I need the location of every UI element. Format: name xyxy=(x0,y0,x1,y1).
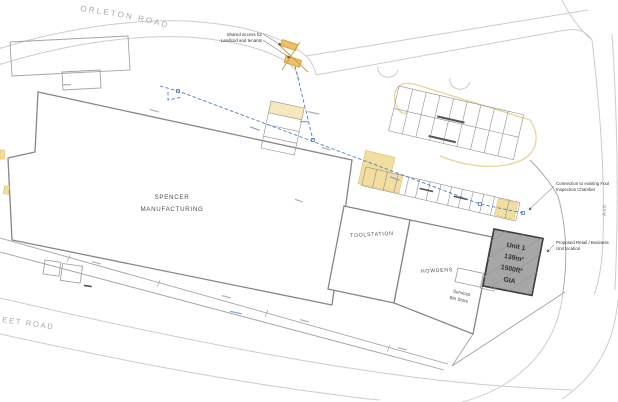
bottom-road-lines xyxy=(0,290,618,402)
a49-label: A49 xyxy=(602,205,608,216)
shared-access-text-line1: Shared access for xyxy=(227,32,263,37)
substation-outline xyxy=(42,260,94,287)
site-plan-drawing: SPENCER MANUFACTURING TOOLSTATION HOWDEN… xyxy=(0,0,618,402)
proposed-unit-text-line2: Unit location xyxy=(556,246,581,251)
howdens-building: HOWDENS xyxy=(394,220,492,334)
sheet-road-label: EET ROAD xyxy=(2,315,55,331)
foul-connection-text-line2: Inspection Chamber xyxy=(556,187,596,192)
neighbour-building xyxy=(10,36,130,90)
service-bay-strip xyxy=(358,151,524,222)
annotation-foul-connection: Connection to existing Foul Inspection C… xyxy=(529,181,609,210)
spencer-label-line2: MANUFACTURING xyxy=(140,206,203,213)
unit1-building: Unit 1 139m² 1500ft² GIA xyxy=(483,229,543,295)
shared-access-text-line2: Landlord and tenants xyxy=(221,38,263,43)
annotation-proposed-unit: Proposed Retail / Business Unit location xyxy=(547,240,610,252)
orleton-road-label: ORLETON ROAD xyxy=(80,4,171,30)
foul-connection-text-line1: Connection to existing Foul xyxy=(556,181,609,186)
proposed-unit-text-line1: Proposed Retail / Business xyxy=(556,240,610,245)
spencer-label-line1: SPENCER xyxy=(155,194,190,201)
site-plan: SPENCER MANUFACTURING TOOLSTATION HOWDEN… xyxy=(0,0,618,402)
